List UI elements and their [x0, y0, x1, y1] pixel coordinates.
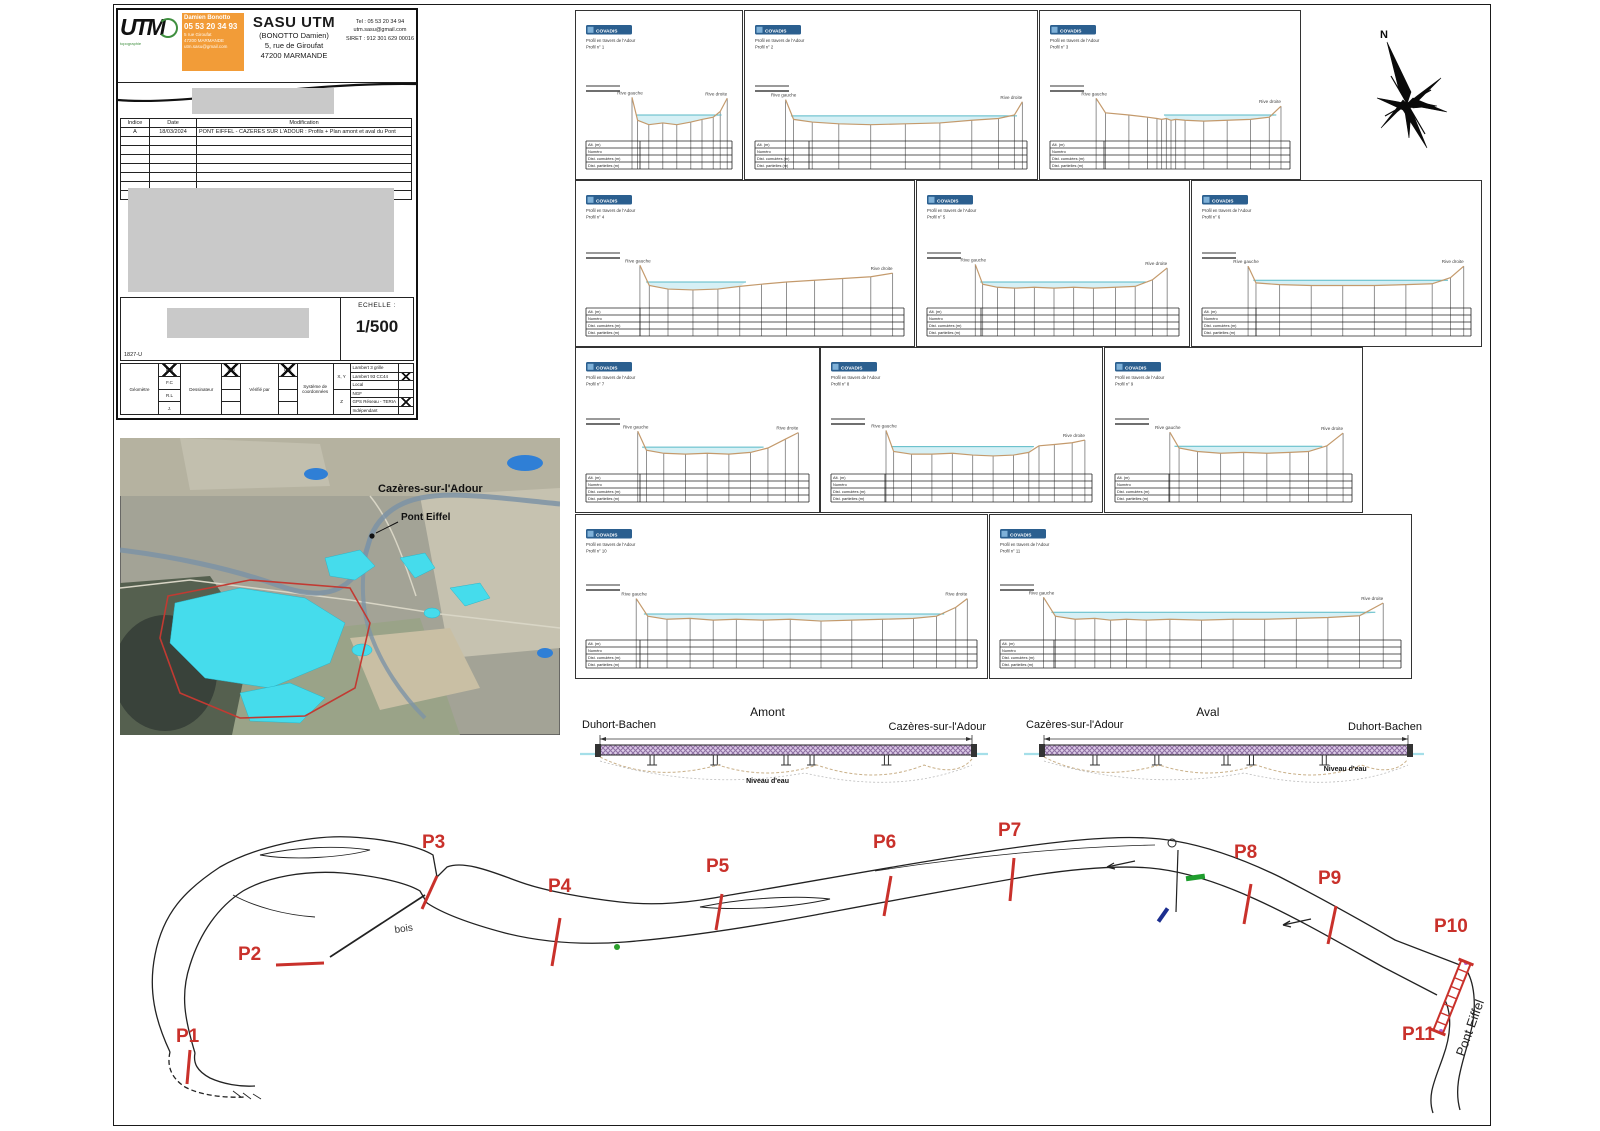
covadis-badge: COVADIS — [1125, 365, 1147, 371]
survey-info-grid: GéomètreD.BF.CR.LJ.DessinateurD.BVérifié… — [120, 363, 414, 415]
profile-table-row-label: Alt. (m) — [1002, 641, 1015, 646]
green-dot — [614, 944, 620, 950]
revision-cell-empty — [197, 137, 412, 146]
title-block-header: UTM topographie Damien Bonotto 05 53 20 … — [118, 10, 416, 83]
right-bank-label: Rive droite — [1259, 99, 1281, 104]
profile-table-row-label: Numéro — [1204, 316, 1218, 321]
profile-table-row-label: Dist. partielles (m) — [588, 330, 620, 335]
left-bank-label: Rive gauche — [623, 424, 649, 429]
checked-x-icon — [159, 364, 180, 376]
river-banks — [152, 837, 1474, 1113]
revision-cell-empty — [197, 173, 412, 182]
river-plan-view: bois Pont Eiffel — [115, 795, 1489, 1125]
plan-colored-marks — [614, 874, 1468, 1033]
panel-subtitle: Profil en travers de l'Adour — [586, 208, 636, 213]
survey-grid-cell: X, YZ — [334, 364, 351, 414]
coord-system-checkbox — [398, 364, 413, 372]
profile-table-row-label: Dist. partielles (m) — [588, 662, 620, 667]
profile-marker-P2: P2 — [238, 944, 261, 966]
north-arrow: N — [1352, 22, 1462, 152]
panel-profile-number: Profil n° 8 — [831, 382, 850, 387]
profile-table-row-label: Numéro — [833, 482, 847, 487]
elevation-right-label: Cazères-sur-l'Adour — [889, 721, 987, 733]
elevation-right-label: Duhort-Bachen — [1348, 721, 1422, 733]
initials-cell — [279, 377, 297, 390]
profile-panel-P5: COVADISProfil en travers de l'AdourProfi… — [916, 180, 1190, 347]
panel-profile-number: Profil n° 10 — [586, 549, 607, 554]
initials-cell: D.B — [279, 364, 297, 377]
survey-grid-label: Dessinateur — [181, 364, 221, 414]
revision-cell: PONT EIFFEL - CAZERES SUR L'ADOUR : Prof… — [197, 128, 412, 137]
right-bank-label: Rive droite — [1000, 95, 1022, 100]
covadis-badge: COVADIS — [1060, 28, 1082, 34]
profile-panel-P7: COVADISProfil en travers de l'AdourProfi… — [575, 347, 820, 513]
profile-table-row-label: Numéro — [757, 149, 771, 154]
redacted-area-large — [128, 188, 394, 292]
profile-table-row-label: Dist. cumulées (m) — [1052, 156, 1085, 161]
profile-table-row-label: Numéro — [1002, 648, 1016, 653]
survey-grid-cell: Géomètre — [121, 364, 159, 414]
revision-cell-empty — [121, 146, 150, 155]
coord-system-row: Lambert 93 CC44 — [351, 373, 413, 382]
company-logo: UTM topographie — [118, 10, 182, 82]
survey-grid-cell: D.B — [279, 364, 298, 414]
checked-x-icon — [399, 373, 413, 381]
checked-x-icon — [399, 398, 413, 406]
profile-table-row-label: Numéro — [588, 316, 602, 321]
scale-label: ECHELLE : — [341, 302, 413, 309]
revision-header: Modification — [197, 119, 412, 128]
right-bank-label: Rive droite — [1321, 426, 1343, 431]
profile-table-row-label: Numéro — [588, 149, 602, 154]
water-level-label: Niveau d'eau — [1324, 766, 1367, 773]
revision-cell: A — [121, 128, 150, 137]
left-bank-label: Rive gauche — [621, 592, 647, 597]
bridge-elevation-amont: AmontDuhort-BachenCazères-sur-l'AdourNiv… — [578, 703, 990, 795]
profile-ticks-group — [187, 858, 1473, 1084]
coord-system-name: NGF — [351, 390, 398, 398]
initials-cell: D.B — [222, 364, 240, 377]
coord-system-checkbox — [398, 381, 413, 389]
right-bank-label: Rive droite — [1063, 433, 1085, 438]
covadis-badge: COVADIS — [596, 365, 618, 371]
profile-table-row-label: Alt. (m) — [1052, 142, 1065, 147]
coord-axis-label: Z — [334, 390, 350, 415]
elevation-left-label: Cazères-sur-l'Adour — [1026, 719, 1124, 731]
profile-table-row-label: Dist. cumulées (m) — [929, 323, 962, 328]
left-bank-label: Rive gauche — [1155, 425, 1181, 430]
panel-subtitle: Profil en travers de l'Adour — [1115, 375, 1165, 380]
coord-axis-label: X, Y — [334, 364, 350, 390]
coord-system-row: GPS Réseau - TERIA — [351, 398, 413, 407]
sheet-reference: 1827-U — [124, 352, 142, 358]
profile-marker-P10: P10 — [1434, 916, 1468, 938]
profile-marker-P3: P3 — [422, 832, 445, 854]
profile-table-row-label: Alt. (m) — [1204, 309, 1217, 314]
initials-cell — [279, 390, 297, 403]
revision-cell-empty — [150, 146, 197, 155]
profile-table-row-label: Dist. cumulées (m) — [588, 489, 621, 494]
panel-subtitle: Profil en travers de l'Adour — [755, 38, 805, 43]
initials-cell — [222, 377, 240, 390]
survey-grid-cell: Lambert 3 grilleLambert 93 CC44LocalNGFG… — [351, 364, 413, 414]
profile-marker-P5: P5 — [706, 856, 729, 878]
bois-label: bois — [394, 923, 414, 936]
scale-box: ECHELLE : 1/500 — [341, 298, 413, 360]
profile-marker-P1: P1 — [176, 1026, 199, 1048]
profile-panel-P8: COVADISProfil en travers de l'AdourProfi… — [820, 347, 1103, 513]
profile-panel-P2: COVADISProfil en travers de l'AdourProfi… — [744, 10, 1038, 180]
map-fields-topleft — [180, 438, 330, 490]
profile-panel-P4: COVADISProfil en travers de l'AdourProfi… — [575, 180, 915, 347]
initials-cell — [222, 390, 240, 403]
panel-subtitle: Profil en travers de l'Adour — [831, 375, 881, 380]
card-phone: 05 53 20 34 93 — [184, 22, 242, 31]
map-bridge-label: Pont Eiffel — [401, 512, 451, 523]
panel-subtitle: Profil en travers de l'Adour — [1202, 208, 1252, 213]
right-bank-label: Rive droite — [776, 426, 798, 431]
profile-table-row-label: Dist. partielles (m) — [757, 163, 789, 168]
plan-sheet: UTM topographie Damien Bonotto 05 53 20 … — [0, 0, 1600, 1131]
profile-table-row-label: Alt. (m) — [588, 142, 601, 147]
card-name: Damien Bonotto — [184, 15, 242, 21]
elevation-title: Aval — [1196, 705, 1219, 719]
panel-subtitle: Profil en travers de l'Adour — [586, 375, 636, 380]
profile-marker-P8: P8 — [1234, 842, 1257, 864]
panel-subtitle: Profil en travers de l'Adour — [927, 208, 977, 213]
right-bank-label: Rive droite — [1145, 261, 1167, 266]
revision-cell-empty — [197, 146, 412, 155]
covadis-badge: COVADIS — [1010, 532, 1032, 538]
profile-table-row-label: Alt. (m) — [588, 641, 601, 646]
panel-profile-number: Profil n° 5 — [927, 215, 946, 220]
profile-table-row-label: Dist. cumulées (m) — [757, 156, 790, 161]
profile-table-row-label: Dist. partielles (m) — [588, 163, 620, 168]
company-address1: 5, rue de Giroufat — [244, 41, 344, 51]
right-bank-label: Rive droite — [1361, 596, 1383, 601]
elevation-left-label: Duhort-Bachen — [582, 719, 656, 731]
initials-cell — [222, 402, 240, 414]
survey-grid-label: Système de coordonnées — [298, 364, 333, 414]
coord-system-name: Indépendant — [351, 407, 398, 415]
revision-cell-empty — [150, 164, 197, 173]
profile-marker-P9: P9 — [1318, 868, 1341, 890]
logo-globe-icon — [158, 18, 178, 38]
profile-marker-P4: P4 — [548, 876, 571, 898]
coord-system-checkbox — [398, 407, 413, 415]
survey-grid-label: Géomètre — [121, 364, 158, 414]
revision-cell-empty — [197, 155, 412, 164]
profile-table-row-label: Alt. (m) — [588, 475, 601, 480]
company-owner: (BONOTTO Damien) — [244, 31, 344, 41]
initials-cell: F.C — [159, 377, 180, 390]
panel-profile-number: Profil n° 3 — [1050, 45, 1069, 50]
panel-profile-number: Profil n° 11 — [1000, 549, 1021, 554]
profile-table-row-label: Dist. cumulées (m) — [588, 323, 621, 328]
elevation-title: Amont — [750, 705, 785, 719]
survey-grid-cell: Dessinateur — [181, 364, 222, 414]
panel-subtitle: Profil en travers de l'Adour — [1050, 38, 1100, 43]
location-map: Cazères-sur-l'Adour Pont Eiffel — [120, 438, 560, 735]
scale-value: 1/500 — [341, 317, 413, 337]
map-bridge-dot — [369, 533, 374, 538]
company-contact: Tel : 05 53 20 34 94 utm.sasu@gmail.com … — [344, 10, 416, 82]
profile-table-row-label: Numéro — [1052, 149, 1066, 154]
covadis-badge: COVADIS — [1212, 198, 1234, 204]
redacted-title — [167, 308, 309, 338]
checked-x-icon — [279, 364, 297, 376]
redacted-area-small — [192, 88, 334, 114]
profile-table-row-label: Alt. (m) — [588, 309, 601, 314]
survey-grid-cell: Vérifié par — [241, 364, 279, 414]
company-identity: SASU UTM (BONOTTO Damien) 5, rue de Giro… — [244, 10, 344, 82]
company-email: utm.sasu@gmail.com — [344, 26, 416, 34]
revision-header: Indice — [121, 119, 150, 128]
coord-system-row: Lambert 3 grille — [351, 364, 413, 373]
survey-grid-cell: Système de coordonnées — [298, 364, 334, 414]
profile-table-row-label: Dist. cumulées (m) — [588, 655, 621, 660]
right-bank-label: Rive droite — [871, 266, 893, 271]
company-tel: Tel : 05 53 20 34 94 — [344, 18, 416, 26]
company-name: SASU UTM — [244, 14, 344, 31]
navy-bar — [1157, 907, 1169, 922]
coord-system-row: Local — [351, 381, 413, 390]
revision-cell-empty — [150, 155, 197, 164]
title-block: UTM topographie Damien Bonotto 05 53 20 … — [116, 8, 418, 420]
north-label: N — [1380, 29, 1388, 41]
survey-grid-label: Vérifié par — [241, 364, 278, 414]
profile-table-row-label: Alt. (m) — [833, 475, 846, 480]
profile-table-row-label: Numéro — [588, 648, 602, 653]
profile-panel-P9: COVADISProfil en travers de l'AdourProfi… — [1104, 347, 1363, 513]
profile-panel-P3: COVADISProfil en travers de l'AdourProfi… — [1039, 10, 1301, 180]
left-bank-label: Rive gauche — [1029, 590, 1055, 595]
revision-cell-empty — [150, 137, 197, 146]
initials-cell — [279, 402, 297, 414]
left-bank-label: Rive gauche — [1081, 91, 1107, 96]
revision-cell-empty — [121, 155, 150, 164]
profile-table-row-label: Numéro — [1117, 482, 1131, 487]
initials-cell: D.B — [159, 364, 180, 377]
panel-profile-number: Profil n° 4 — [586, 215, 605, 220]
profile-marker-P6: P6 — [873, 832, 896, 854]
coord-system-name: Lambert 93 CC44 — [351, 373, 398, 381]
coord-system-checkbox — [398, 398, 413, 406]
coord-system-checkbox — [398, 373, 413, 381]
panel-subtitle: Profil en travers de l'Adour — [586, 542, 636, 547]
coord-system-checkbox — [398, 390, 413, 398]
revision-cell-empty — [121, 137, 150, 146]
left-bank-label: Rive gauche — [771, 93, 797, 98]
coord-system-row: Indépendant — [351, 407, 413, 415]
profile-table-row-label: Dist. partielles (m) — [1052, 163, 1084, 168]
coord-system-row: NGF — [351, 390, 413, 399]
revision-header: Date — [150, 119, 197, 128]
covadis-badge: COVADIS — [841, 365, 863, 371]
covadis-badge: COVADIS — [596, 198, 618, 204]
profile-panel-P1: COVADISProfil en travers de l'AdourProfi… — [575, 10, 743, 180]
profile-table-row-label: Dist. partielles (m) — [588, 496, 620, 501]
checked-x-icon — [222, 364, 240, 376]
right-bank-label: Rive droite — [945, 592, 967, 597]
profile-table-row-label: Alt. (m) — [1117, 475, 1130, 480]
bridge-name-label: Pont Eiffel — [1453, 997, 1487, 1058]
revision-cell: 18/03/2024 — [150, 128, 197, 137]
profile-table-row-label: Dist. cumulées (m) — [588, 156, 621, 161]
covadis-badge: COVADIS — [596, 532, 618, 538]
water-level-label: Niveau d'eau — [746, 778, 789, 785]
drawing-title-strip: 1827-U ECHELLE : 1/500 — [120, 297, 414, 361]
profile-table-row-label: Alt. (m) — [757, 142, 770, 147]
profile-table-row-label: Dist. partielles (m) — [833, 496, 865, 501]
panel-subtitle: Profil en travers de l'Adour — [1000, 542, 1050, 547]
covadis-badge: COVADIS — [937, 198, 959, 204]
left-bank-label: Rive gauche — [1233, 259, 1259, 264]
survey-grid-cell: D.B — [222, 364, 241, 414]
profile-table-row-label: Dist. cumulées (m) — [1002, 655, 1035, 660]
profile-table-row-label: Numéro — [929, 316, 943, 321]
initials-cell: R.L — [159, 390, 180, 403]
panel-subtitle: Profil en travers de l'Adour — [586, 38, 636, 43]
survey-grid-cell: D.BF.CR.LJ. — [159, 364, 181, 414]
profile-marker-P11: P11 — [1402, 1024, 1435, 1046]
profile-table-row-label: Dist. partielles (m) — [929, 330, 961, 335]
panel-profile-number: Profil n° 1 — [586, 45, 605, 50]
panel-profile-number: Profil n° 7 — [586, 382, 605, 387]
map-town-label: Cazères-sur-l'Adour — [378, 483, 483, 495]
card-email: utm.sasu@gmail.com — [184, 44, 242, 50]
profile-table-row-label: Dist. cumulées (m) — [833, 489, 866, 494]
panel-profile-number: Profil n° 2 — [755, 45, 774, 50]
profile-table-row-label: Dist. partielles (m) — [1002, 662, 1034, 667]
coord-system-name: Local — [351, 381, 398, 389]
left-bank-label: Rive gauche — [617, 90, 643, 95]
profile-panel-P10: COVADISProfil en travers de l'AdourProfi… — [575, 514, 988, 679]
right-bank-label: Rive droite — [1442, 259, 1464, 264]
left-bank-label: Rive gauche — [871, 423, 897, 428]
profile-marker-P7: P7 — [998, 820, 1021, 842]
profile-table-row-label: Dist. partielles (m) — [1204, 330, 1236, 335]
right-bank-label: Rive droite — [705, 91, 727, 96]
profile-table-row-label: Dist. cumulées (m) — [1117, 489, 1150, 494]
coord-system-name: Lambert 3 grille — [351, 364, 398, 372]
revision-cell-empty — [197, 164, 412, 173]
initials-cell: J. — [159, 402, 180, 414]
revision-cell-empty — [121, 173, 150, 182]
panel-profile-number: Profil n° 6 — [1202, 215, 1221, 220]
bridge-elevation-aval: AvalCazères-sur-l'AdourDuhort-BachenNive… — [1022, 703, 1426, 795]
covadis-badge: COVADIS — [765, 28, 787, 34]
left-bank-label: Rive gauche — [625, 258, 651, 263]
revision-cell-empty — [121, 164, 150, 173]
profile-table-row-label: Dist. cumulées (m) — [1204, 323, 1237, 328]
revision-cell-empty — [150, 173, 197, 182]
business-card: Damien Bonotto 05 53 20 34 93 5 rue Giro… — [182, 13, 244, 71]
coord-system-name: GPS Réseau - TERIA — [351, 398, 398, 406]
title-zone: 1827-U — [121, 298, 341, 360]
company-address2: 47200 MARMANDE — [244, 51, 344, 61]
profile-table-row-label: Dist. partielles (m) — [1117, 496, 1149, 501]
panel-profile-number: Profil n° 9 — [1115, 382, 1134, 387]
logo-subtext: topographie — [120, 41, 180, 46]
covadis-badge: COVADIS — [596, 28, 618, 34]
profile-table-row-label: Numéro — [588, 482, 602, 487]
profile-table-row-label: Alt. (m) — [929, 309, 942, 314]
company-siret: SIRET : 912 301 629 00016 — [344, 35, 416, 43]
profile-panel-P11: COVADISProfil en travers de l'AdourProfi… — [989, 514, 1412, 679]
left-bank-label: Rive gauche — [961, 257, 987, 262]
profile-panel-P6: COVADISProfil en travers de l'AdourProfi… — [1191, 180, 1482, 347]
